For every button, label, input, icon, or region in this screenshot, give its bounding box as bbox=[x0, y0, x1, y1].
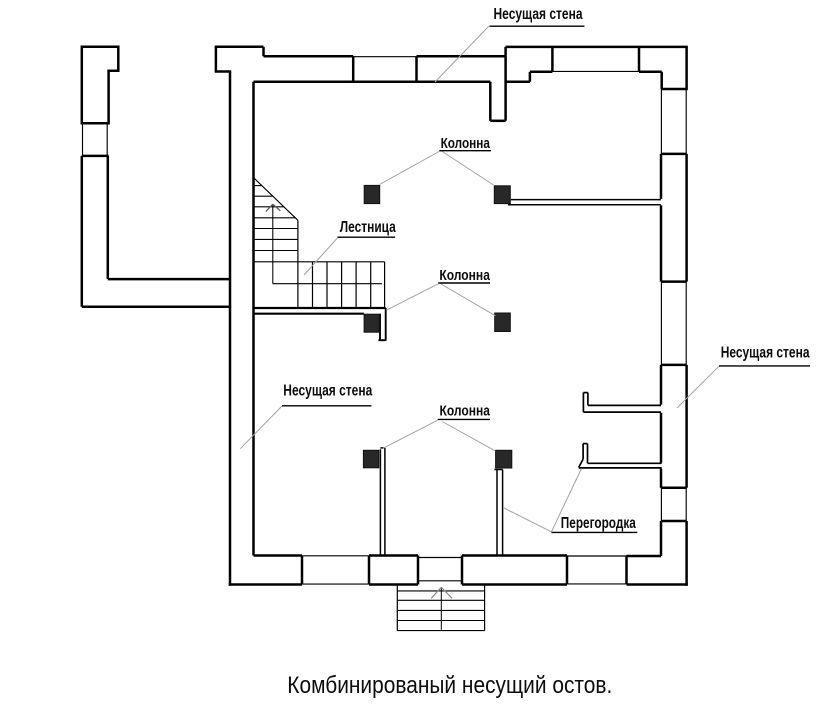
svg-text:Перегородка: Перегородка bbox=[561, 515, 636, 532]
svg-text:Колонна: Колонна bbox=[441, 135, 491, 152]
svg-text:Несущая стена: Несущая стена bbox=[283, 383, 372, 400]
svg-text:Комбинированый несущий остов.: Комбинированый несущий остов. bbox=[287, 672, 612, 699]
svg-text:Несущая стена: Несущая стена bbox=[721, 344, 810, 361]
svg-text:Колонна: Колонна bbox=[439, 267, 490, 284]
svg-text:Несущая стена: Несущая стена bbox=[494, 6, 583, 23]
svg-text:Колонна: Колонна bbox=[440, 403, 491, 420]
svg-text:Лестница: Лестница bbox=[340, 219, 396, 236]
